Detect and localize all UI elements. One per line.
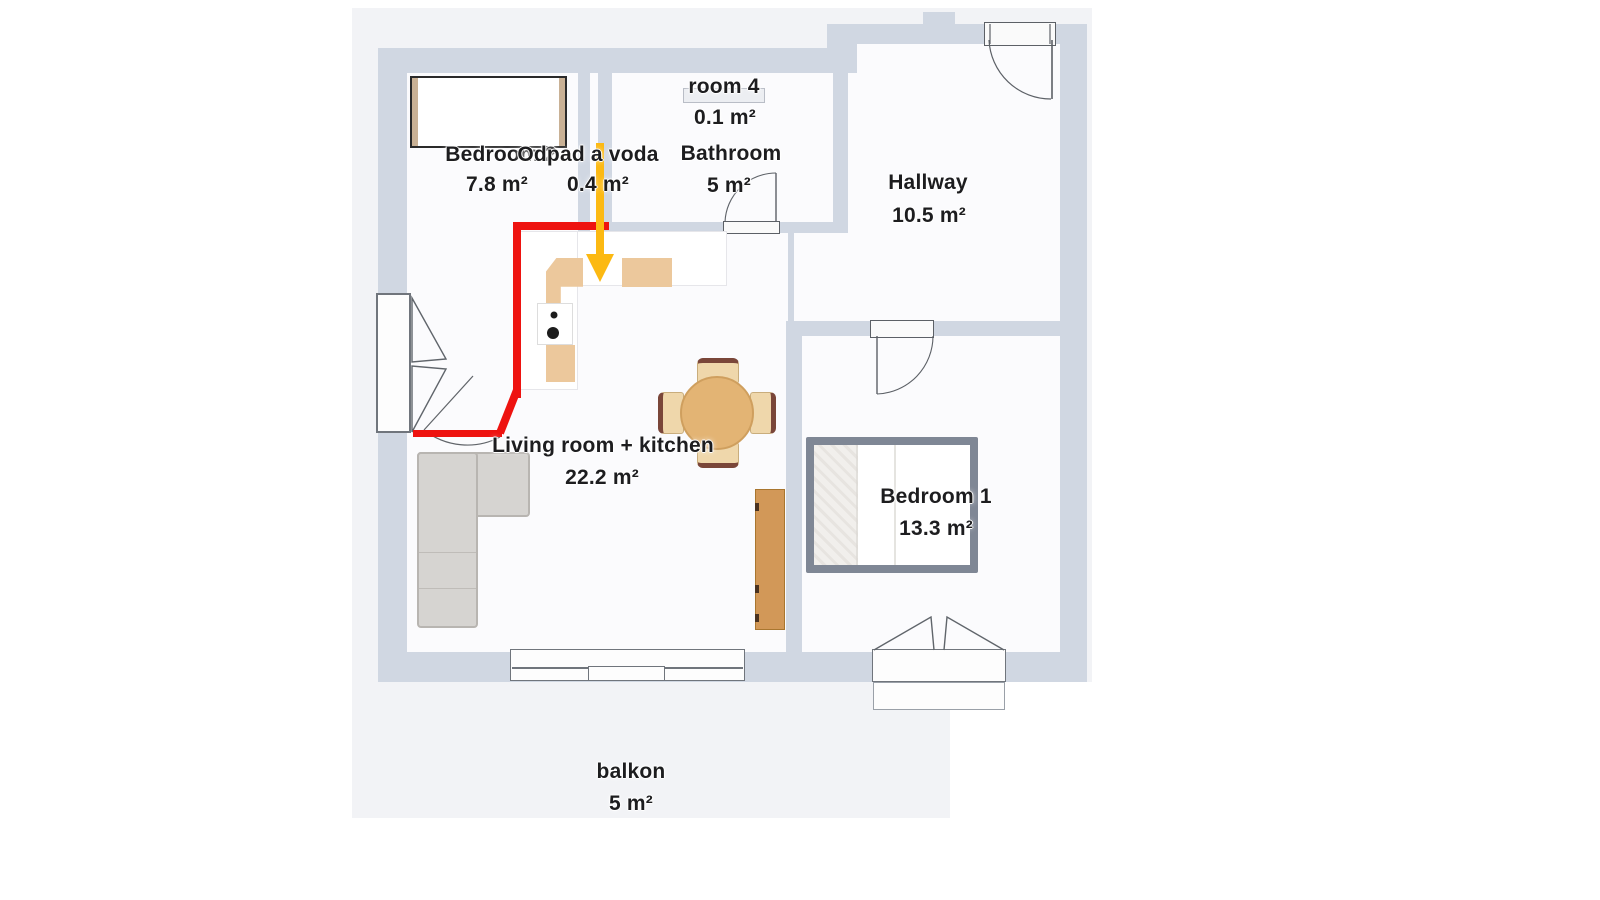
floorplan-canvas: Bedroom 2 7.8 m² Odpad a voda 0.4 m² roo… <box>352 8 1092 818</box>
floorplan-page: { "plan": { "rooms": [ {"label": "Bedroo… <box>0 0 1600 900</box>
wall-right <box>1060 24 1087 682</box>
wall-entry-block <box>923 12 955 44</box>
room-area-room4: 0.1 m² <box>694 106 756 130</box>
room-label-bedroom1: Bedroom 1 <box>880 485 992 509</box>
bedroom1-door-frame <box>870 320 934 338</box>
balcony-window-sliding-panel <box>588 666 665 681</box>
window-bedroom1-sill <box>873 682 1005 710</box>
sofa-cushion-seam-2 <box>419 588 476 589</box>
sideboard-knob-3 <box>755 614 759 622</box>
sideboard-knob-2 <box>755 585 759 593</box>
room-label-balkon: balkon <box>597 760 666 784</box>
room-area-bedroom2: 7.8 m² <box>466 173 528 197</box>
chair-right <box>750 392 776 434</box>
bed-bedroom2-footboard <box>559 78 565 146</box>
bed-bedroom2 <box>410 76 567 148</box>
wall-living-hallway-partition <box>788 233 794 331</box>
room-label-room4: room 4 <box>688 75 759 99</box>
bathroom-door-frame <box>723 221 780 234</box>
room-area-bathroom: 5 m² <box>707 174 751 198</box>
sideboard <box>755 489 785 630</box>
room-label-odpad-a-voda: Odpad a voda <box>517 143 658 167</box>
wall-entry-joint <box>827 24 857 73</box>
sideboard-knob-1 <box>755 503 759 511</box>
wall-bathroom-right <box>833 73 848 222</box>
chair-top <box>697 358 739 384</box>
room-label-hallway: Hallway <box>888 171 968 195</box>
kitchen-worktop-unit <box>622 258 672 287</box>
room-area-odpad-a-voda: 0.4 m² <box>567 173 629 197</box>
wall-top <box>378 48 857 73</box>
french-window-left <box>376 293 411 433</box>
room-area-living-kitchen: 22.2 m² <box>565 466 639 490</box>
room-area-balkon: 5 m² <box>609 792 653 816</box>
floor-hallway-lower <box>794 233 1060 321</box>
wall-bedroom1-left <box>786 321 802 682</box>
room-area-bedroom1: 13.3 m² <box>899 517 973 541</box>
entry-door-frame <box>984 22 1056 46</box>
stove <box>537 303 573 345</box>
kitchen-base-cabinet <box>546 345 575 382</box>
room-label-bathroom: Bathroom <box>681 142 782 166</box>
sofa-cushion-seam-1 <box>419 552 476 553</box>
room-label-living-kitchen: Living room + kitchen <box>492 434 714 458</box>
room-area-hallway: 10.5 m² <box>892 204 966 228</box>
bed-bedroom2-headboard <box>412 78 418 146</box>
window-bedroom1 <box>872 649 1006 682</box>
sofa-body <box>417 452 478 628</box>
bed-bedroom1-blanket <box>814 445 858 565</box>
chair-left <box>658 392 684 434</box>
